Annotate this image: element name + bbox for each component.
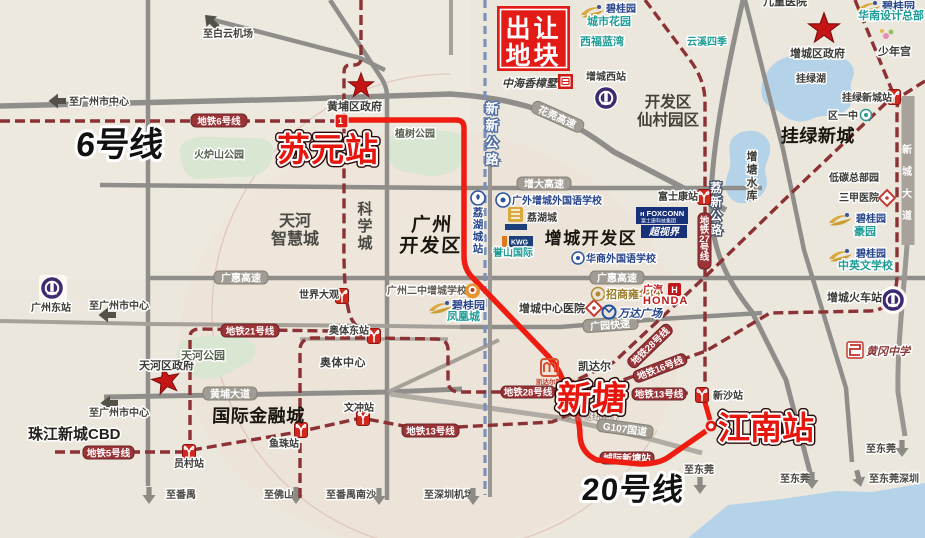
svg-text:云溪四季: 云溪四季 [687,35,728,48]
svg-text:中英文学校: 中英文学校 [838,258,894,272]
svg-text:开发区: 开发区 [645,92,692,111]
svg-text:至广州市中心: 至广州市中心 [89,299,149,312]
svg-text:仙村园区: 仙村园区 [637,110,700,129]
svg-text:华商外国语学校: 华商外国语学校 [586,252,657,265]
svg-text:HONDA: HONDA [643,295,688,307]
svg-text:新沙站: 新沙站 [713,389,743,402]
svg-text:碧桂园: 碧桂园 [605,2,636,15]
svg-text:增: 增 [747,149,758,163]
svg-text:富士康站: 富士康站 [658,190,698,203]
svg-text:黄埔大道: 黄埔大道 [210,388,250,401]
svg-text:万达广场: 万达广场 [617,307,664,320]
svg-text:凤凰城: 凤凰城 [447,309,480,323]
svg-text:线: 线 [700,251,710,263]
svg-text:黄冈中学: 黄冈中学 [866,345,912,358]
svg-text:新: 新 [902,143,912,156]
svg-text:新塘: 新塘 [556,380,628,418]
svg-text:广州东站: 广州东站 [31,301,71,314]
svg-text:文冲站: 文冲站 [344,401,374,414]
svg-text:开发区: 开发区 [399,234,464,257]
svg-text:广州二中增城学校: 广州二中增城学校 [387,284,468,297]
svg-text:超视界: 超视界 [648,226,680,238]
svg-text:广州: 广州 [410,213,454,236]
svg-text:鱼珠站: 鱼珠站 [269,437,299,450]
svg-text:H: H [671,285,678,295]
svg-text:道: 道 [902,209,912,222]
svg-text:至番禺: 至番禺 [166,488,196,501]
svg-text:地铁13号线: 地铁13号线 [635,389,684,401]
svg-text:天河公园: 天河公园 [181,348,225,362]
svg-text:区一中: 区一中 [828,109,858,122]
svg-text:科: 科 [357,200,372,218]
svg-text:广惠高速: 广惠高速 [597,272,637,285]
svg-text:大: 大 [902,187,912,200]
svg-text:出让: 出让 [505,15,561,43]
svg-text:碧桂园: 碧桂园 [855,247,886,260]
svg-text:库: 库 [747,188,758,202]
svg-text:站: 站 [473,242,484,255]
svg-text:水: 水 [747,175,759,189]
svg-text:城: 城 [357,234,372,252]
svg-text:1: 1 [338,116,343,126]
svg-text:至东莞: 至东莞 [866,442,896,455]
svg-text:路: 路 [710,222,723,237]
svg-text:公: 公 [710,209,722,223]
svg-text:增大高速: 增大高速 [524,178,564,191]
svg-text:塘: 塘 [747,162,758,176]
svg-text:地铁28号线: 地铁28号线 [504,387,553,399]
svg-text:华南设计总部: 华南设计总部 [858,8,924,22]
svg-text:挂绿湖: 挂绿湖 [796,72,826,85]
svg-text:至广州市中心: 至广州市中心 [89,406,149,419]
svg-text:增城区政府: 增城区政府 [790,46,845,60]
svg-text:地铁13号线: 地铁13号线 [406,426,455,438]
svg-text:智慧城: 智慧城 [271,229,319,248]
svg-text:西福蓝湾: 西福蓝湾 [580,34,624,48]
svg-text:至广州市中心: 至广州市中心 [69,95,129,108]
svg-text:黄埔区政府: 黄埔区政府 [327,99,382,113]
svg-text:挂绿新城: 挂绿新城 [780,125,855,146]
svg-text:新: 新 [485,101,498,116]
svg-text:增城中心医院: 增城中心医院 [519,301,585,315]
svg-text:天河: 天河 [279,211,311,230]
svg-text:公: 公 [485,135,498,150]
svg-text:三甲医院: 三甲医院 [839,191,879,204]
svg-text:增城火车站: 增城火车站 [827,290,882,304]
svg-text:路: 路 [485,152,499,167]
svg-text:地铁21号线: 地铁21号线 [226,326,275,338]
svg-text:6号线: 6号线 [75,126,165,164]
svg-text:至佛山: 至佛山 [264,488,294,501]
svg-text:地铁5号线: 地铁5号线 [87,448,131,460]
svg-text:至番禺南沙: 至番禺南沙 [326,488,376,501]
svg-text:富士康科技集团: 富士康科技集团 [641,218,676,225]
svg-text:至东莞: 至东莞 [684,463,714,476]
svg-text:广惠高速: 广惠高速 [221,272,261,285]
svg-text:学: 学 [357,217,372,235]
svg-text:火炉山公园: 火炉山公园 [194,148,244,161]
svg-text:地块: 地块 [505,42,561,70]
svg-text:至东莞: 至东莞 [780,472,810,485]
svg-text:20号线: 20号线 [581,472,687,507]
svg-text:珠江新城CBD: 珠江新城CBD [28,425,121,443]
svg-text:奥体东站: 奥体东站 [329,324,369,337]
svg-text:湖: 湖 [473,218,484,231]
svg-text:至白云机场: 至白云机场 [203,27,253,40]
svg-text:少年宫: 少年宫 [877,44,911,58]
svg-text:新: 新 [485,118,498,133]
svg-text:国际金融城: 国际金融城 [212,405,306,426]
svg-text:广外增城外国语学校: 广外增城外国语学校 [512,194,603,207]
svg-text:世界大观: 世界大观 [299,288,339,301]
svg-text:低碳总部园: 低碳总部园 [828,171,879,184]
svg-text:KWG: KWG [511,240,529,247]
svg-text:至东莞深圳: 至东莞深圳 [869,472,919,485]
svg-text:碧桂园: 碧桂园 [855,212,886,225]
svg-text:植树公园: 植树公园 [394,127,435,140]
svg-text:誉山国际: 誉山国际 [492,246,533,259]
svg-text:荔: 荔 [472,206,484,219]
svg-text:挂绿新城站: 挂绿新城站 [842,91,892,104]
svg-text:城市花园: 城市花园 [587,14,631,28]
svg-text:豪园: 豪园 [854,224,876,238]
svg-text:至深圳机场: 至深圳机场 [424,488,474,501]
svg-text:增城西站: 增城西站 [586,70,626,83]
svg-text:凯达尔: 凯达尔 [578,359,611,373]
svg-text:荔湖城: 荔湖城 [526,211,557,224]
svg-text:江南站: 江南站 [718,410,814,446]
svg-text:员村站: 员村站 [174,457,204,470]
svg-text:新: 新 [710,194,722,209]
svg-text:城: 城 [902,165,912,178]
svg-text:ʜ FOXCONN: ʜ FOXCONN [640,209,684,218]
svg-text:奥体中心: 奥体中心 [319,355,366,369]
svg-text:儿童医院: 儿童医院 [762,0,807,8]
svg-text:城: 城 [473,230,484,243]
svg-text:增城开发区: 增城开发区 [544,228,637,248]
svg-text:碧桂园: 碧桂园 [451,298,485,312]
svg-text:地铁6号线: 地铁6号线 [197,116,241,128]
svg-text:中海香樟墅: 中海香樟墅 [502,77,559,90]
svg-text:苏元站: 苏元站 [277,131,379,168]
